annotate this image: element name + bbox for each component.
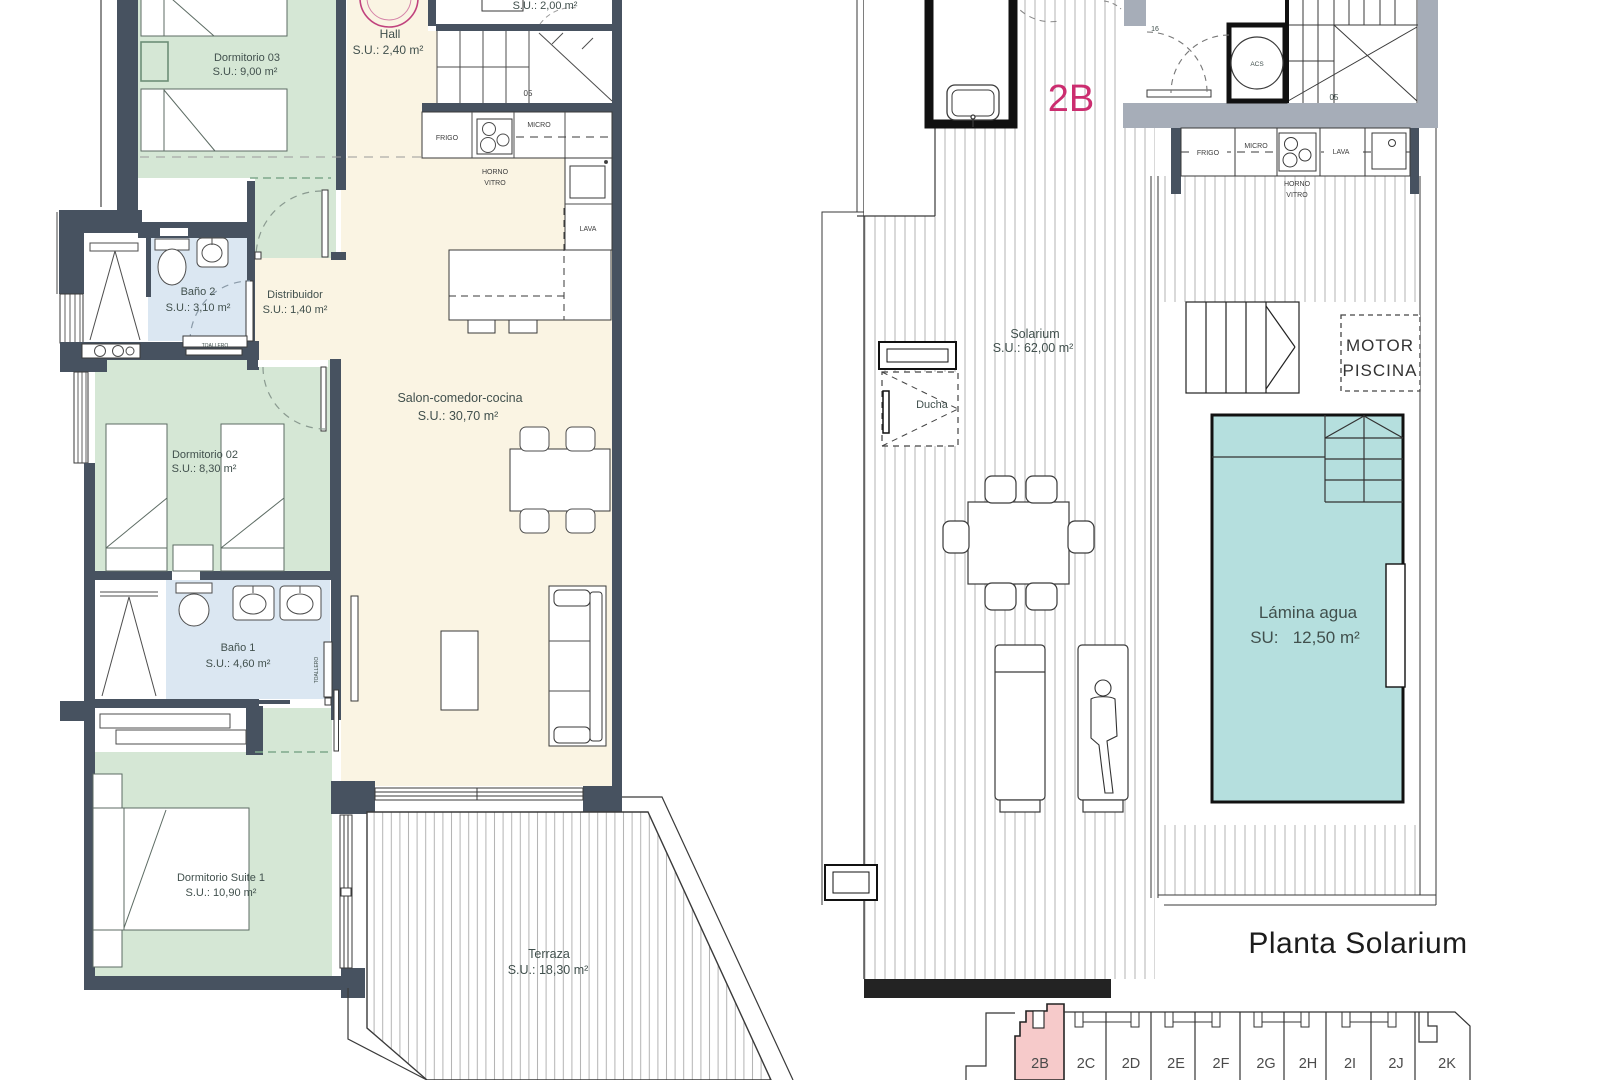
svg-text:TOALLERO: TOALLERO: [202, 343, 229, 349]
svg-text:LAVA: LAVA: [1333, 149, 1350, 156]
svg-text:Lámina agua: Lámina agua: [1259, 603, 1358, 622]
svg-text:05: 05: [1330, 93, 1339, 102]
svg-text:2I: 2I: [1344, 1056, 1356, 1072]
svg-text:2F: 2F: [1213, 1056, 1230, 1072]
svg-text:16: 16: [1151, 26, 1159, 33]
svg-text:2G: 2G: [1256, 1056, 1275, 1072]
svg-text:2B: 2B: [1031, 1056, 1049, 1072]
svg-text:MICRO: MICRO: [1244, 143, 1268, 150]
svg-text:2K: 2K: [1438, 1056, 1456, 1072]
svg-text:LAVA: LAVA: [580, 226, 597, 233]
svg-text:Dormitorio Suite 1: Dormitorio Suite 1: [177, 872, 265, 884]
svg-text:VITRO: VITRO: [484, 180, 506, 187]
svg-text:Salon-comedor-cocina: Salon-comedor-cocina: [397, 391, 522, 405]
svg-text:Planta Solarium: Planta Solarium: [1248, 927, 1467, 960]
svg-text:ACS: ACS: [1250, 61, 1264, 68]
svg-text:2B: 2B: [1048, 78, 1094, 120]
svg-text:2D: 2D: [1122, 1056, 1141, 1072]
svg-text:S.U.: 10,90 m²: S.U.: 10,90 m²: [186, 887, 257, 899]
svg-text:S.U.: 18,30 m²: S.U.: 18,30 m²: [508, 963, 589, 977]
svg-text:S.U.: 3,10 m²: S.U.: 3,10 m²: [166, 302, 231, 314]
svg-text:MOTOR: MOTOR: [1346, 336, 1414, 355]
svg-text:Dormitorio 03: Dormitorio 03: [214, 52, 280, 64]
svg-text:TOALLERO: TOALLERO: [314, 657, 320, 684]
svg-text:S.U.: 62,00 m²: S.U.: 62,00 m²: [993, 341, 1074, 355]
svg-text:SU: 12,50 m²: SU: 12,50 m²: [1250, 628, 1360, 647]
svg-text:S.U.: 9,00 m²: S.U.: 9,00 m²: [213, 66, 278, 78]
svg-text:Terraza: Terraza: [528, 947, 570, 961]
svg-text:2E: 2E: [1167, 1056, 1185, 1072]
svg-text:S.U.: 4,60 m²: S.U.: 4,60 m²: [206, 658, 271, 670]
svg-text:2C: 2C: [1077, 1056, 1096, 1072]
svg-text:FRIGO: FRIGO: [436, 135, 459, 142]
svg-text:S.U.: 30,70 m²: S.U.: 30,70 m²: [418, 409, 499, 423]
svg-text:Solarium: Solarium: [1010, 327, 1059, 341]
svg-text:MICRO: MICRO: [527, 122, 551, 129]
svg-text:Ducha: Ducha: [916, 399, 949, 411]
svg-text:S.U.: 2,00 m²: S.U.: 2,00 m²: [513, 0, 578, 12]
svg-text:FRIGO: FRIGO: [1197, 150, 1220, 157]
svg-text:Baño 2: Baño 2: [181, 286, 216, 298]
svg-text:HORNO: HORNO: [1284, 181, 1311, 188]
svg-text:Baño 1: Baño 1: [221, 642, 256, 654]
svg-text:2H: 2H: [1299, 1056, 1318, 1072]
svg-text:VITRO: VITRO: [1286, 192, 1308, 199]
svg-text:05: 05: [524, 89, 533, 98]
svg-text:Dormitorio 02: Dormitorio 02: [172, 449, 238, 461]
svg-text:HORNO: HORNO: [482, 169, 509, 176]
svg-text:S.U.: 2,40 m²: S.U.: 2,40 m²: [353, 43, 424, 57]
svg-text:Distribuidor: Distribuidor: [267, 289, 323, 301]
svg-text:S.U.: 8,30 m²: S.U.: 8,30 m²: [172, 463, 237, 475]
svg-text:Hall: Hall: [380, 27, 401, 41]
svg-text:PISCINA: PISCINA: [1342, 361, 1417, 380]
svg-text:S.U.: 1,40 m²: S.U.: 1,40 m²: [263, 304, 328, 316]
svg-text:2J: 2J: [1388, 1056, 1403, 1072]
